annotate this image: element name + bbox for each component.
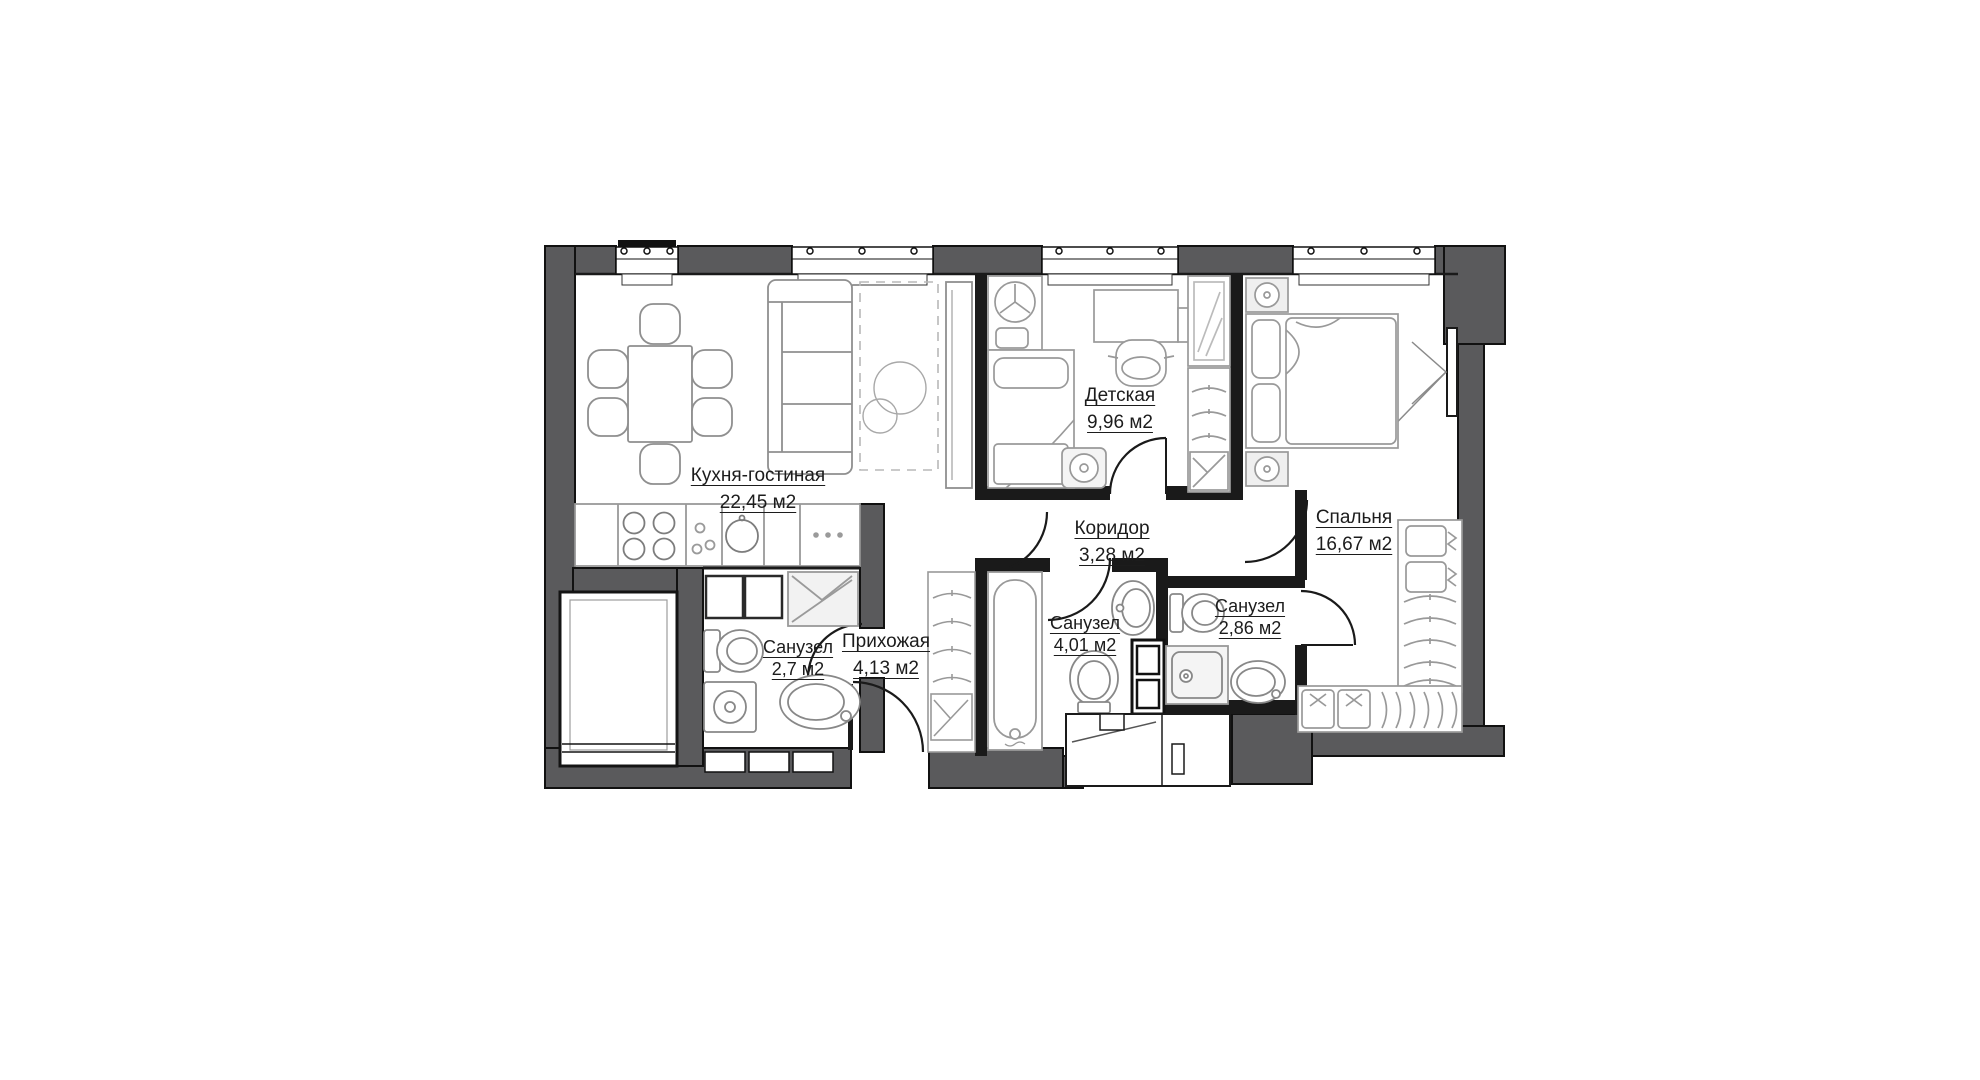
room-name: Спальня [1316, 504, 1392, 531]
room-name: Детская [1085, 382, 1155, 409]
room-area: 2,86 м2 [1215, 617, 1285, 639]
room-name: Прихожая [842, 628, 930, 655]
sink-icon [780, 675, 860, 729]
bottom-wall-niche [705, 752, 833, 772]
hallway-closet [928, 572, 975, 752]
toilet-icon [704, 630, 763, 672]
room-label-bedroom: Спальня 16,67 м2 [1316, 504, 1392, 558]
storage-box [745, 576, 782, 618]
room-label-bathroom-small: Санузел 2,7 м2 [763, 636, 833, 680]
room-area: 16,67 м2 [1316, 531, 1392, 558]
room-label-bathroom-ensuite: Санузел 2,86 м2 [1215, 595, 1285, 639]
bottom-alcove-cabinets [1066, 714, 1230, 786]
room-area: 9,96 м2 [1085, 409, 1155, 436]
partition-hallway-closet [975, 560, 987, 756]
toilet-icon [1070, 651, 1118, 713]
room-name: Санузел [1215, 595, 1285, 617]
dishwasher-dots-icon [813, 532, 843, 538]
partition-corridor-bath-a [975, 558, 1050, 572]
balcony-door-open-icon [1412, 342, 1446, 404]
wardrobe-hangers-icon [1188, 368, 1230, 492]
sofa [768, 280, 852, 474]
shaft-box [560, 592, 677, 766]
room-area: 4,01 м2 [1050, 634, 1120, 656]
room-name: Санузел [763, 636, 833, 658]
room-name: Коридор [1074, 515, 1149, 542]
nightstand-icon [1246, 452, 1288, 486]
double-bed-icon [1246, 314, 1398, 448]
shoe-shelf-icon [1298, 686, 1462, 732]
wall-bath-small-right-lower [860, 678, 884, 752]
storage-box [706, 576, 743, 618]
rug [860, 282, 938, 470]
outer-wall-top-d [1178, 246, 1293, 274]
kitchen-living-furniture [575, 280, 972, 566]
room-area: 22,45 м2 [691, 489, 825, 516]
floor-plan-drawing [0, 0, 1980, 1080]
balcony-door-panel [1447, 328, 1457, 416]
outer-wall-bottom-mid [929, 748, 1063, 788]
room-label-hallway: Прихожая 4,13 м2 [842, 628, 930, 682]
floor-plants [863, 362, 926, 433]
shelf-unit-icon [988, 276, 1042, 350]
stool-icon [1062, 448, 1106, 488]
shaft [560, 592, 677, 766]
washing-machine-icon [704, 682, 756, 732]
outer-wall-top-c [933, 246, 1042, 274]
room-name: Кухня-гостиная [691, 462, 825, 489]
room-name: Санузел [1050, 612, 1120, 634]
desk-chair-icon [1108, 340, 1174, 386]
room-area: 2,7 м2 [763, 658, 833, 680]
outer-wall-top-b [678, 246, 792, 274]
shower-cabin-icon [1166, 646, 1228, 704]
bathtub-icon [988, 572, 1042, 750]
sink-icon [1231, 661, 1285, 703]
partition-children-bedroom [1230, 274, 1243, 496]
dining-table [628, 346, 692, 442]
shower-tray-icon [788, 572, 858, 626]
partition-living-children [975, 274, 987, 494]
room-label-kitchen-living: Кухня-гостиная 22,45 м2 [691, 462, 825, 516]
room-label-bathroom-main: Санузел 4,01 м2 [1050, 612, 1120, 656]
nightstand-icon [1246, 278, 1288, 312]
floor-plan-canvas: Кухня-гостиная 22,45 м2 Детская 9,96 м2 … [0, 0, 1980, 1080]
shelving-icon [1132, 640, 1164, 714]
wall-counter-end [860, 504, 884, 628]
single-bed-icon [988, 350, 1074, 488]
tv-stand [946, 282, 972, 488]
room-area: 4,13 м2 [842, 655, 930, 682]
room-label-corridor: Коридор 3,28 м2 [1074, 515, 1149, 569]
mirror-cabinet-icon [1188, 276, 1230, 366]
room-area: 3,28 м2 [1074, 542, 1149, 569]
desk-icon [1094, 290, 1178, 342]
laundry-basket-icon [931, 694, 972, 740]
room-label-children: Детская 9,96 м2 [1085, 382, 1155, 436]
wardrobe-hangers-icon [1398, 520, 1462, 692]
partition-ensuite-top [1168, 576, 1305, 588]
door-arc-children [1110, 438, 1166, 494]
window-1-top-bar [618, 240, 676, 247]
wall-shaft-right [677, 568, 703, 766]
door-arc-bath-ensuite [1301, 591, 1355, 645]
laundry-basket-icon [1190, 452, 1228, 490]
